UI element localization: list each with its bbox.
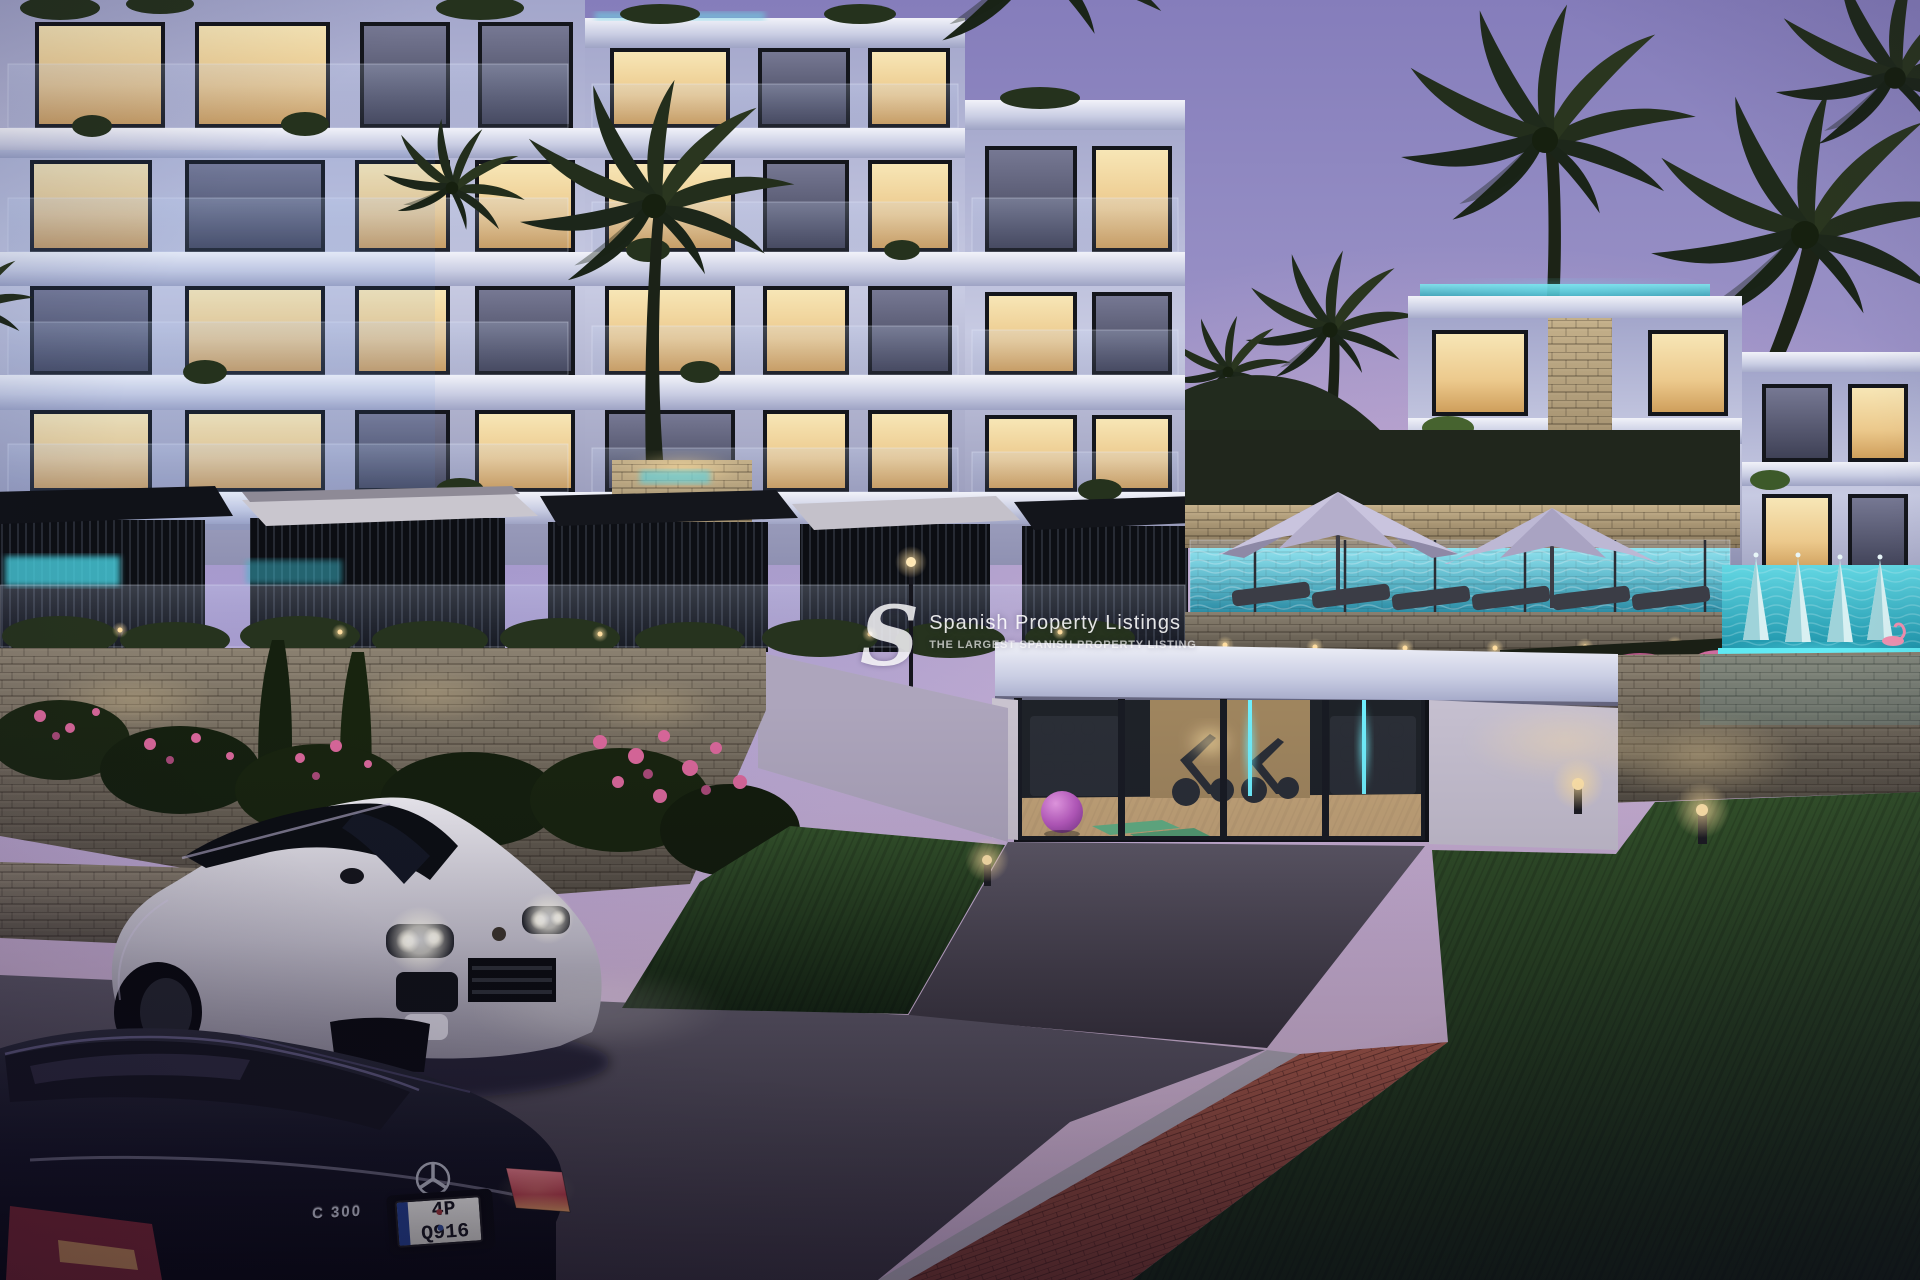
watermark-subtitle: THE LARGEST SPANISH PROPERTY LISTING — [929, 639, 1196, 651]
taillight-right — [496, 1168, 576, 1212]
watermark-title: Spanish Property Listings — [929, 612, 1196, 635]
license-plate: 4P Q916 — [394, 1195, 483, 1248]
license-plate-number: 4P Q916 — [407, 1196, 481, 1247]
pool-terrace — [1185, 430, 1740, 662]
watermark-logo-s: S — [860, 606, 919, 670]
building-main — [0, 0, 1185, 565]
property-render-scene: S Spanish Property Listings THE LARGEST … — [0, 0, 1920, 1280]
car-model-badge: C 300 — [312, 1203, 362, 1223]
watermark: S Spanish Property Listings THE LARGEST … — [860, 606, 1197, 670]
